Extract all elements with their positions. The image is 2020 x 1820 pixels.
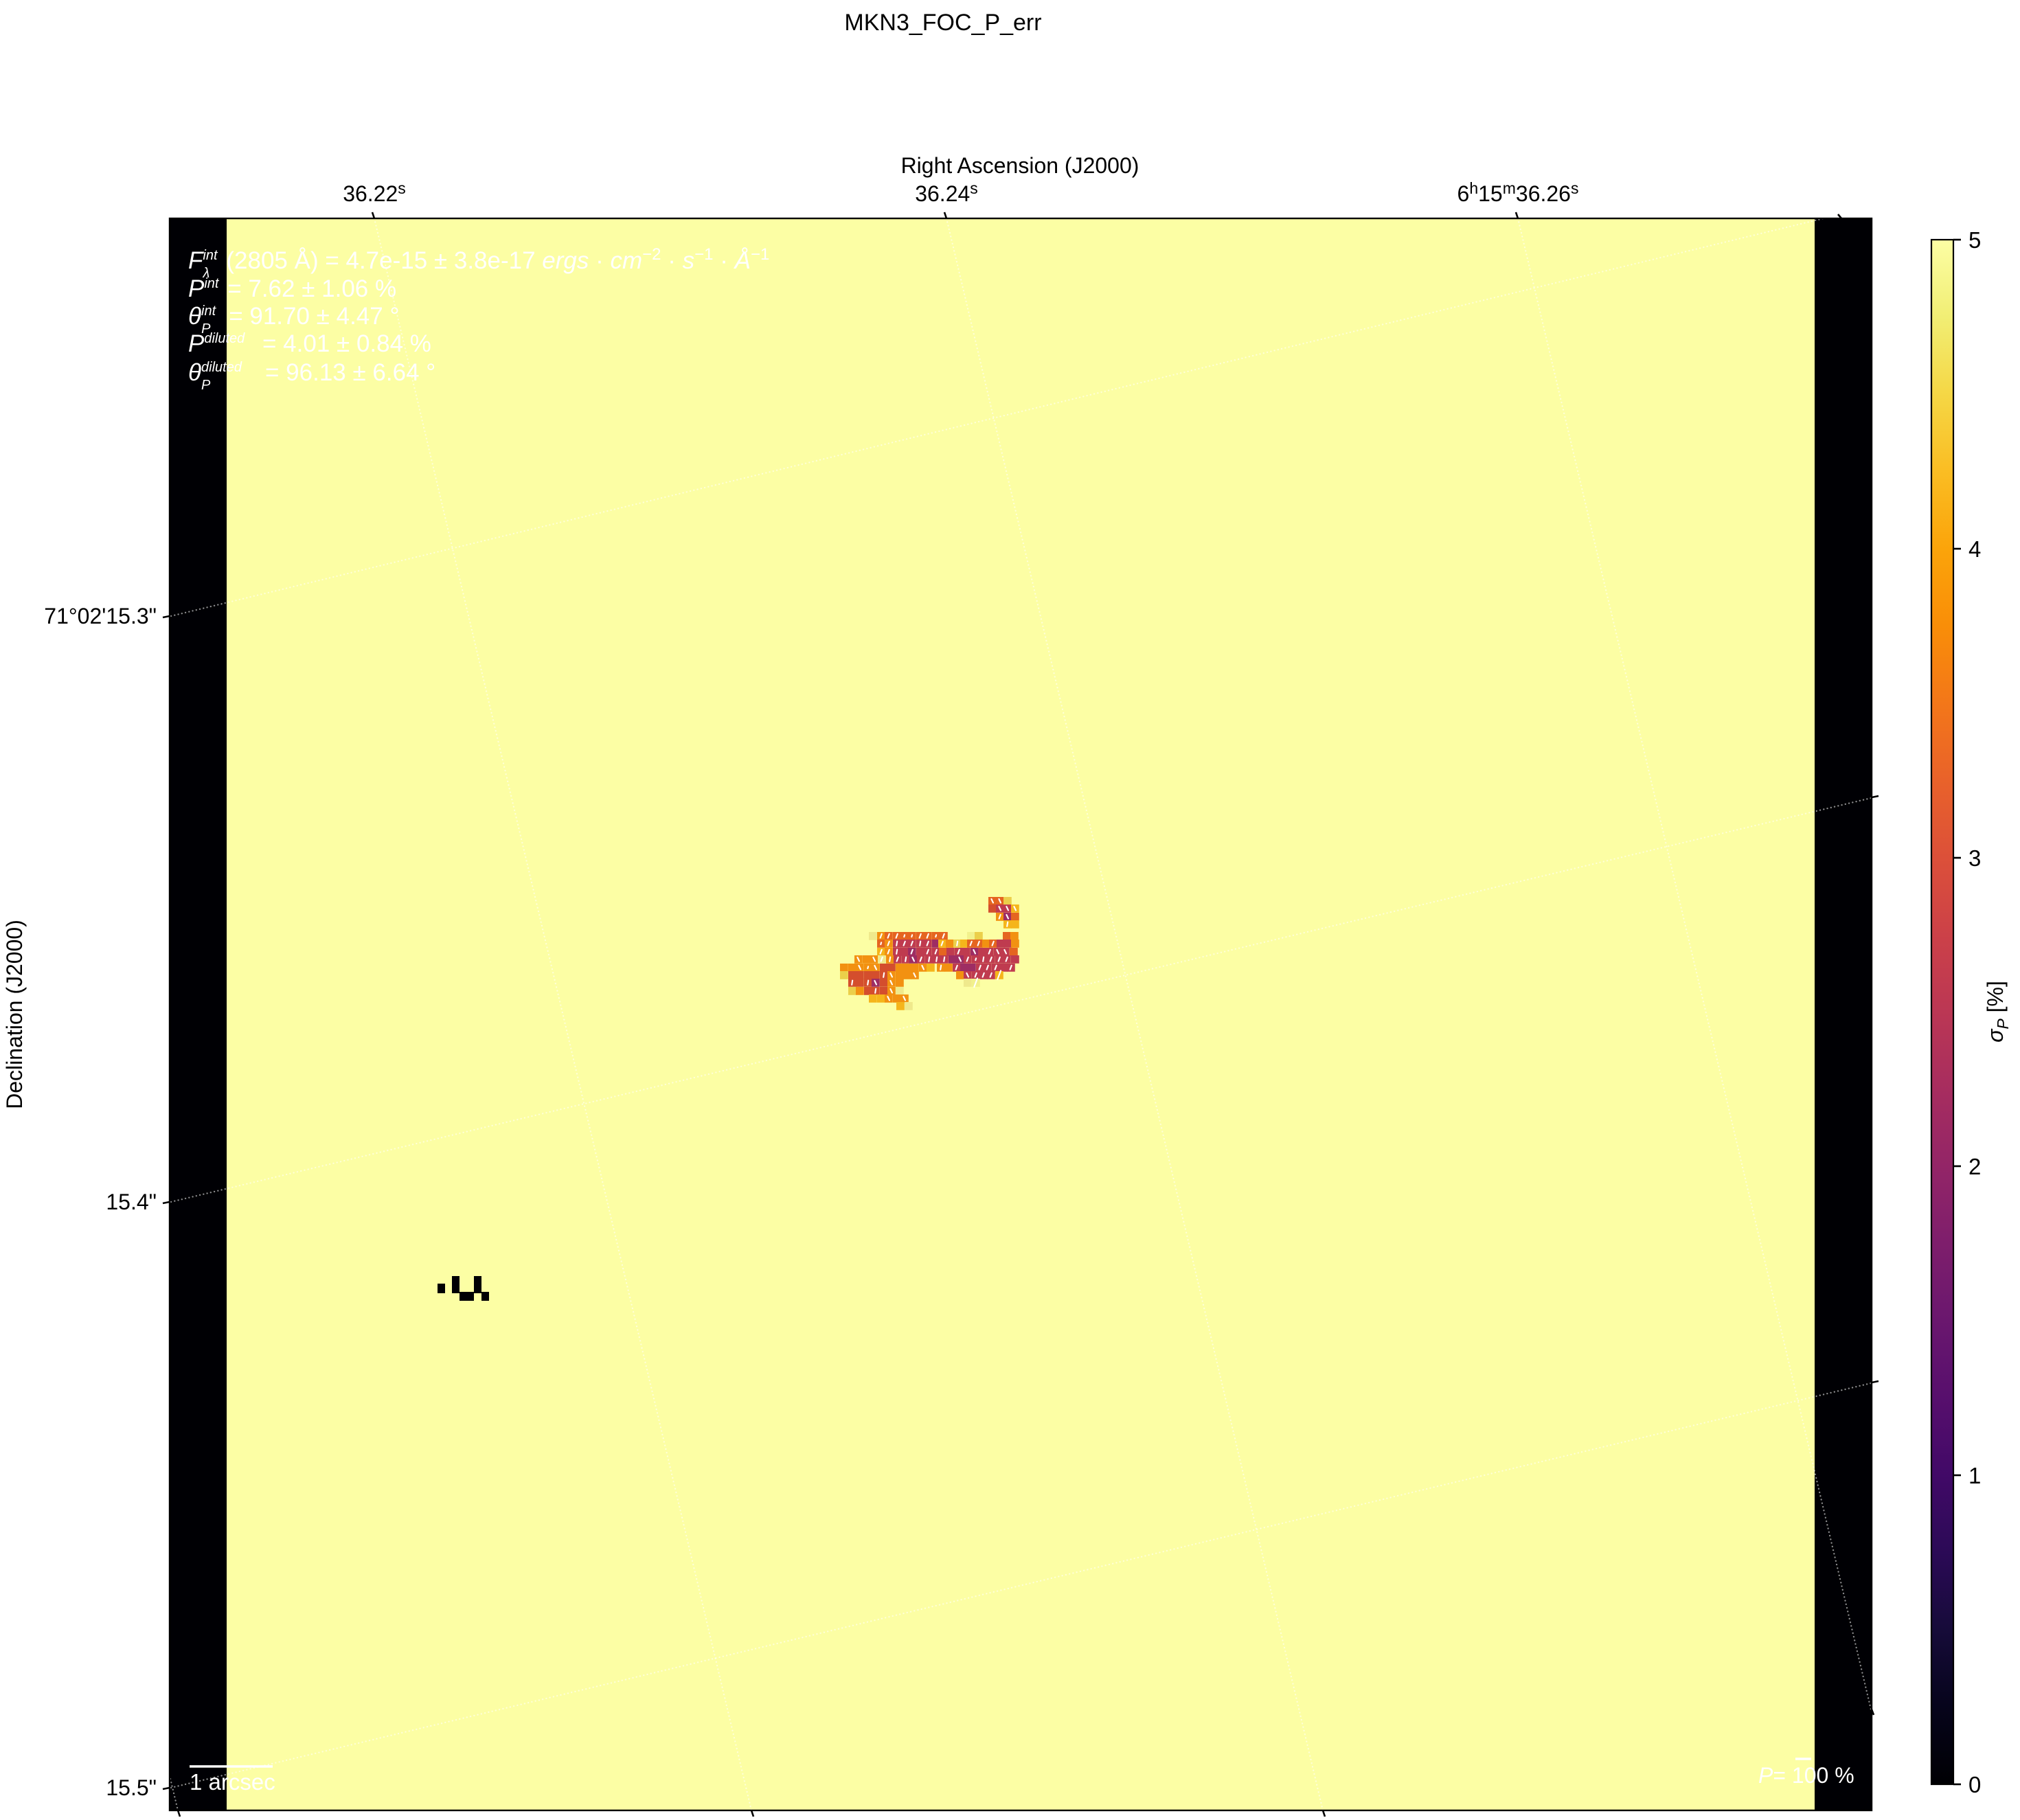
svg-text:36.24s: 36.24s	[915, 179, 978, 206]
svg-text:5: 5	[1968, 227, 1981, 253]
svg-text:Declination (J2000): Declination (J2000)	[2, 920, 27, 1109]
svg-text:1: 1	[1968, 1463, 1981, 1488]
svg-text:Right Ascension (J2000): Right Ascension (J2000)	[901, 153, 1139, 178]
svg-text:σP [%]: σP [%]	[1983, 981, 2012, 1043]
svg-text:15.4": 15.4"	[106, 1190, 157, 1214]
svg-text:15.5": 15.5"	[106, 1775, 157, 1800]
svg-text:MKN3_FOC_P_err: MKN3_FOC_P_err	[844, 10, 1041, 36]
svg-text:2: 2	[1968, 1154, 1981, 1179]
svg-text:4: 4	[1968, 536, 1981, 562]
svg-text:0: 0	[1968, 1772, 1981, 1797]
svg-text:3: 3	[1968, 845, 1981, 871]
svg-text:1 arcsec: 1 arcsec	[190, 1769, 275, 1795]
svg-text:71°02'15.3": 71°02'15.3"	[44, 604, 157, 628]
svg-text:P= 100 %: P= 100 %	[1758, 1763, 1854, 1788]
svg-text:36.22s: 36.22s	[343, 179, 406, 206]
